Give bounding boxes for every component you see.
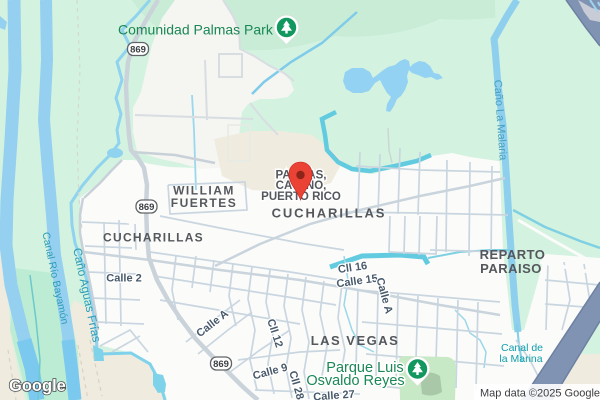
svg-text:PARAISO: PARAISO <box>480 261 542 276</box>
svg-text:CUCHARILLAS: CUCHARILLAS <box>103 231 204 245</box>
svg-text:Calle 2: Calle 2 <box>106 273 141 285</box>
svg-text:Osvaldo Reyes: Osvaldo Reyes <box>306 373 404 389</box>
svg-text:869: 869 <box>130 44 146 55</box>
svg-text:869: 869 <box>213 359 229 370</box>
svg-text:Map data ©2025 Google: Map data ©2025 Google <box>480 388 600 400</box>
svg-text:Comunidad Palmas Park: Comunidad Palmas Park <box>118 22 274 38</box>
svg-text:REPARTO: REPARTO <box>480 247 546 262</box>
svg-text:869: 869 <box>139 202 155 213</box>
svg-text:Calle 27: Calle 27 <box>313 389 355 400</box>
svg-text:la Marina: la Marina <box>499 353 542 365</box>
svg-text:LAS VEGAS: LAS VEGAS <box>311 333 400 348</box>
svg-text:FUERTES: FUERTES <box>171 196 238 210</box>
svg-text:Google: Google <box>9 377 66 395</box>
svg-text:CUCHARILLAS: CUCHARILLAS <box>272 206 387 221</box>
